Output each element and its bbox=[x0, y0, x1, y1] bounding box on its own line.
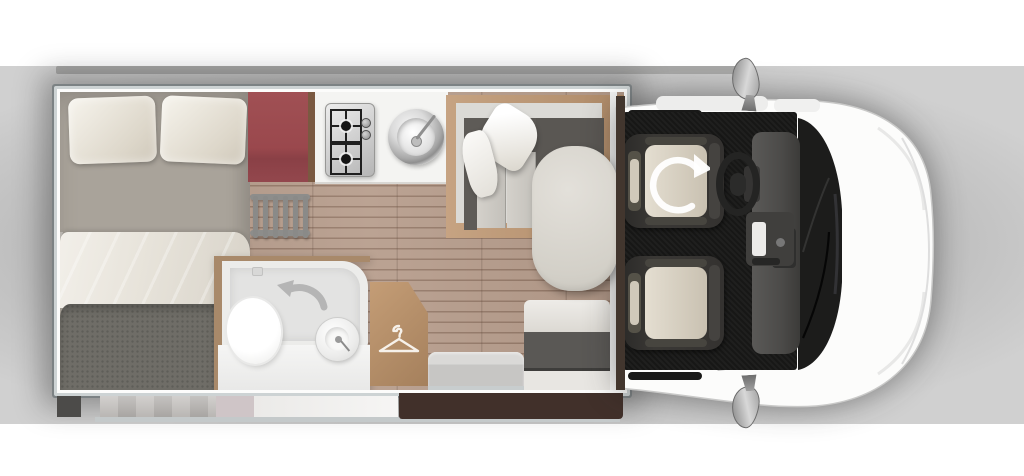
burner-icon bbox=[330, 143, 362, 175]
ladder-rung bbox=[303, 196, 308, 238]
shower-drain bbox=[252, 267, 263, 276]
bench-backrest bbox=[524, 332, 610, 368]
habitation-module bbox=[52, 84, 632, 398]
bunk-ladder bbox=[250, 192, 310, 241]
skirt-panel-light bbox=[254, 396, 398, 417]
ladder-rung bbox=[263, 196, 268, 238]
dining-table bbox=[532, 146, 618, 291]
entry-step-panel bbox=[100, 396, 216, 417]
handbrake bbox=[752, 258, 780, 265]
hob-knob bbox=[361, 130, 371, 140]
washbasin bbox=[316, 318, 359, 361]
ladder-rung bbox=[283, 196, 288, 238]
side-mirror-right bbox=[732, 374, 768, 428]
kitchen-sink bbox=[388, 109, 444, 165]
step-cushion bbox=[428, 352, 524, 388]
skirt-panel-dark bbox=[57, 396, 81, 417]
side-mirror-left bbox=[732, 58, 768, 112]
ladder-rung bbox=[253, 196, 258, 238]
bench-headrest bbox=[524, 300, 610, 332]
ladder-rail bbox=[250, 194, 310, 200]
mirror-blade bbox=[729, 384, 762, 429]
seat-bolster bbox=[645, 339, 707, 347]
skirt-panel-pink bbox=[216, 396, 254, 417]
hob-knob bbox=[361, 118, 371, 128]
console-tray bbox=[752, 222, 766, 256]
gear-knob bbox=[776, 238, 785, 247]
swivel-arrow-icon bbox=[272, 276, 330, 312]
bathroom bbox=[214, 256, 370, 390]
bed-pillow-right bbox=[160, 95, 248, 165]
floorplan-canvas bbox=[0, 0, 1024, 476]
kitchen-worktop bbox=[315, 92, 448, 184]
fridge-freezer bbox=[248, 92, 310, 182]
seat-bolster bbox=[709, 265, 720, 341]
steering-wheel bbox=[716, 152, 760, 216]
burner-icon bbox=[330, 109, 362, 143]
ladder-rail bbox=[250, 230, 310, 236]
seat-bolster bbox=[645, 259, 707, 267]
center-console bbox=[746, 212, 794, 266]
mirror-blade bbox=[729, 56, 762, 101]
travel-bench bbox=[524, 300, 610, 390]
seat-headrest-pad bbox=[630, 159, 639, 203]
fridge-wood-divider bbox=[308, 92, 315, 182]
swivel-arrow-icon bbox=[646, 144, 710, 220]
step-trim bbox=[428, 386, 524, 390]
steering-wheel-hub bbox=[730, 173, 746, 196]
roof-vent-panel bbox=[774, 99, 820, 112]
skirt-panel-brown bbox=[399, 393, 623, 419]
ladder-rung bbox=[273, 196, 278, 238]
wardrobe bbox=[370, 282, 428, 386]
passenger-seat bbox=[624, 256, 724, 350]
seat-back-panel bbox=[645, 267, 707, 339]
habitation-roof-strip bbox=[56, 66, 740, 74]
seat-headrest-pad bbox=[630, 281, 639, 325]
interior-wood-floor bbox=[60, 92, 624, 390]
bed-pillow-left bbox=[68, 96, 157, 165]
door-window-slit bbox=[628, 372, 702, 380]
cab-divider-dark bbox=[616, 96, 625, 390]
ladder-rung bbox=[293, 196, 298, 238]
bench-seat bbox=[524, 371, 610, 390]
gas-hob bbox=[325, 103, 375, 177]
hanger-icon bbox=[377, 324, 421, 356]
